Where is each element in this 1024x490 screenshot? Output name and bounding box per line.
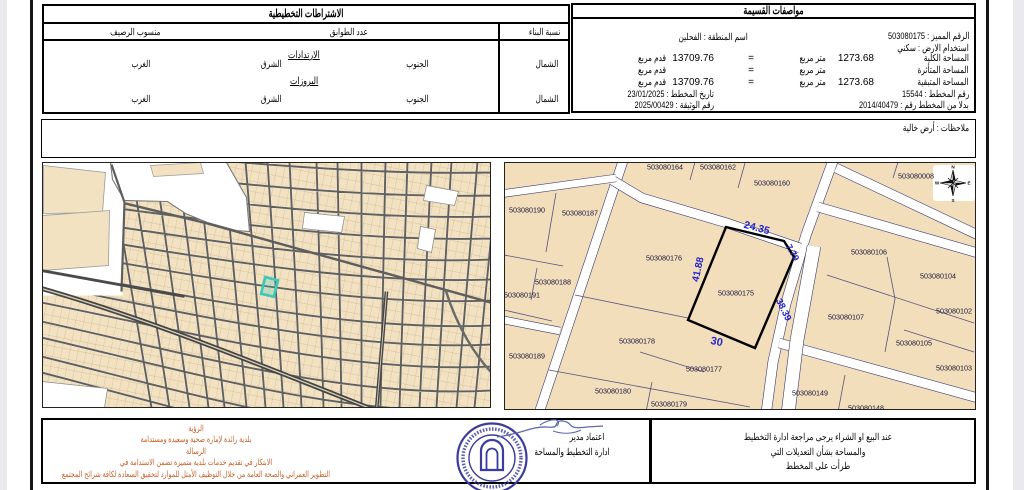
svg-text:503080160: 503080160 [754,179,790,188]
svg-text:503080148: 503080148 [848,404,884,410]
svg-text:503080106: 503080106 [851,248,887,257]
svg-text:503080190: 503080190 [509,206,545,215]
svg-text:503080176: 503080176 [646,254,682,263]
svg-text:503080189: 503080189 [509,352,545,361]
svg-text:503080149: 503080149 [792,389,828,398]
svg-text:W: W [935,181,940,186]
svg-text:S: S [951,198,954,203]
svg-text:503080102: 503080102 [936,307,972,316]
svg-text:503080175: 503080175 [718,289,754,298]
svg-text:503080191: 503080191 [505,291,540,300]
svg-text:503080107: 503080107 [828,313,864,322]
svg-text:503080187: 503080187 [562,209,598,218]
svg-text:503080180: 503080180 [595,387,631,396]
svg-text:503080164: 503080164 [647,163,683,172]
svg-text:503080188: 503080188 [535,278,571,287]
svg-text:503080008: 503080008 [898,172,934,181]
svg-text:503080162: 503080162 [700,163,736,172]
svg-text:503080103: 503080103 [936,364,972,373]
svg-text:503080179: 503080179 [651,400,687,409]
svg-text:503080104: 503080104 [920,272,956,281]
svg-text:E: E [967,181,970,186]
svg-text:30: 30 [709,335,723,349]
svg-text:503080178: 503080178 [619,337,655,346]
svg-text:503080105: 503080105 [896,339,932,348]
svg-text:503080177: 503080177 [686,365,722,374]
